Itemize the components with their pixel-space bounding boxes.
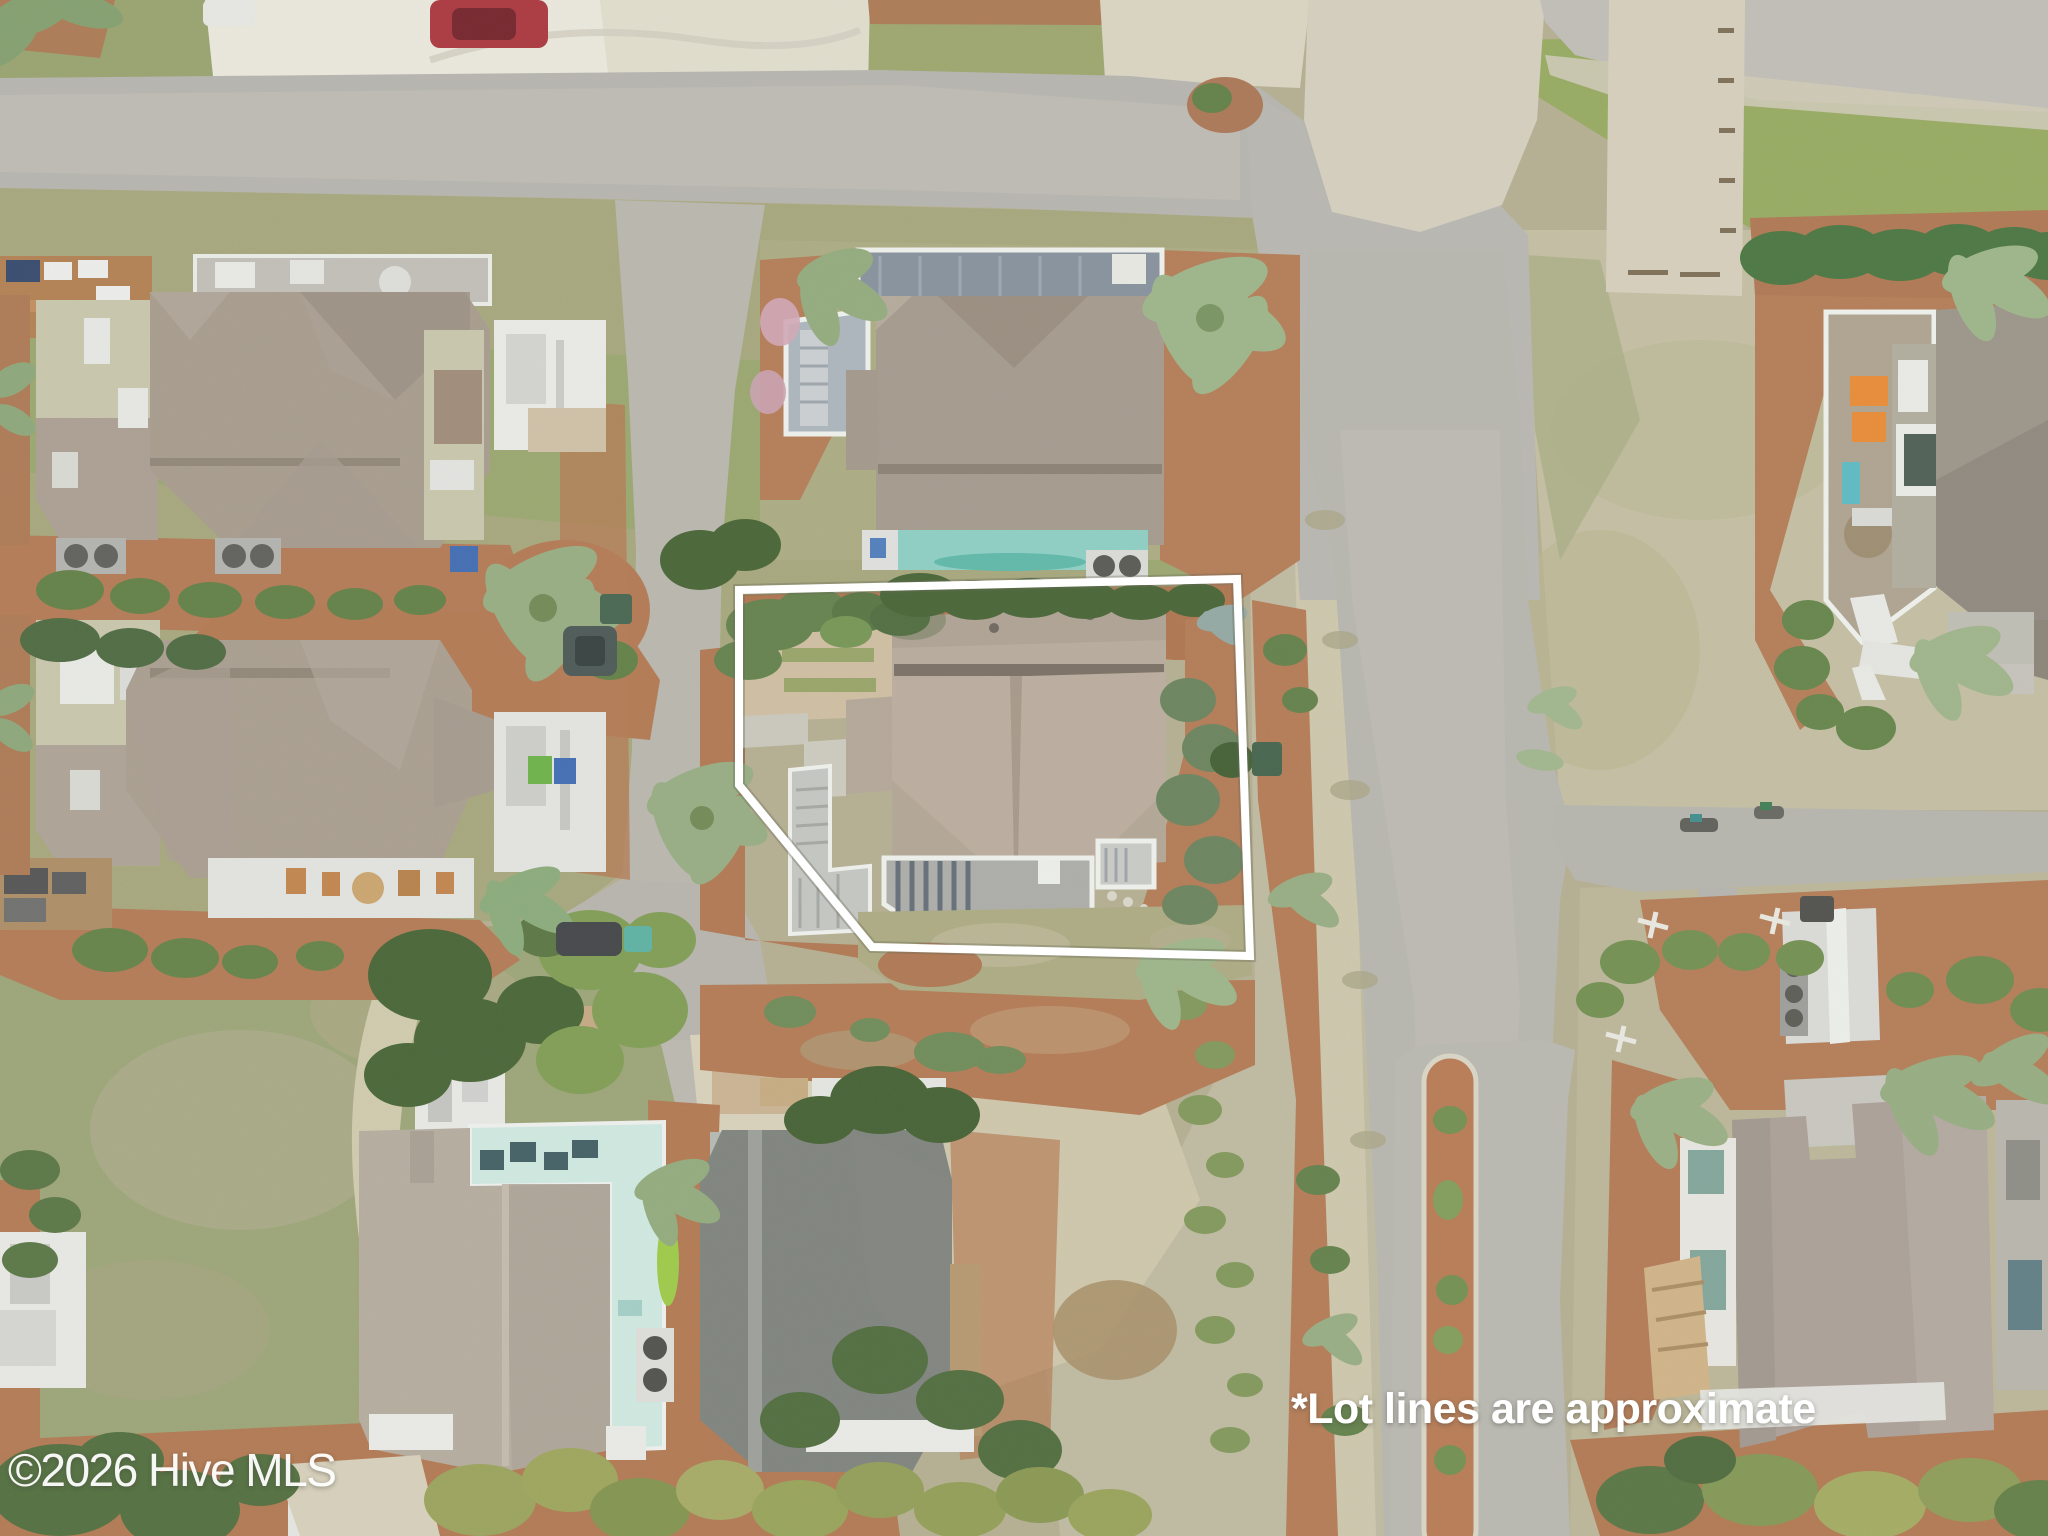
svg-text:*Lot lines are approximate: *Lot lines are approximate	[1291, 1385, 1816, 1433]
svg-text:©2026 Hive MLS: ©2026 Hive MLS	[8, 1444, 335, 1496]
